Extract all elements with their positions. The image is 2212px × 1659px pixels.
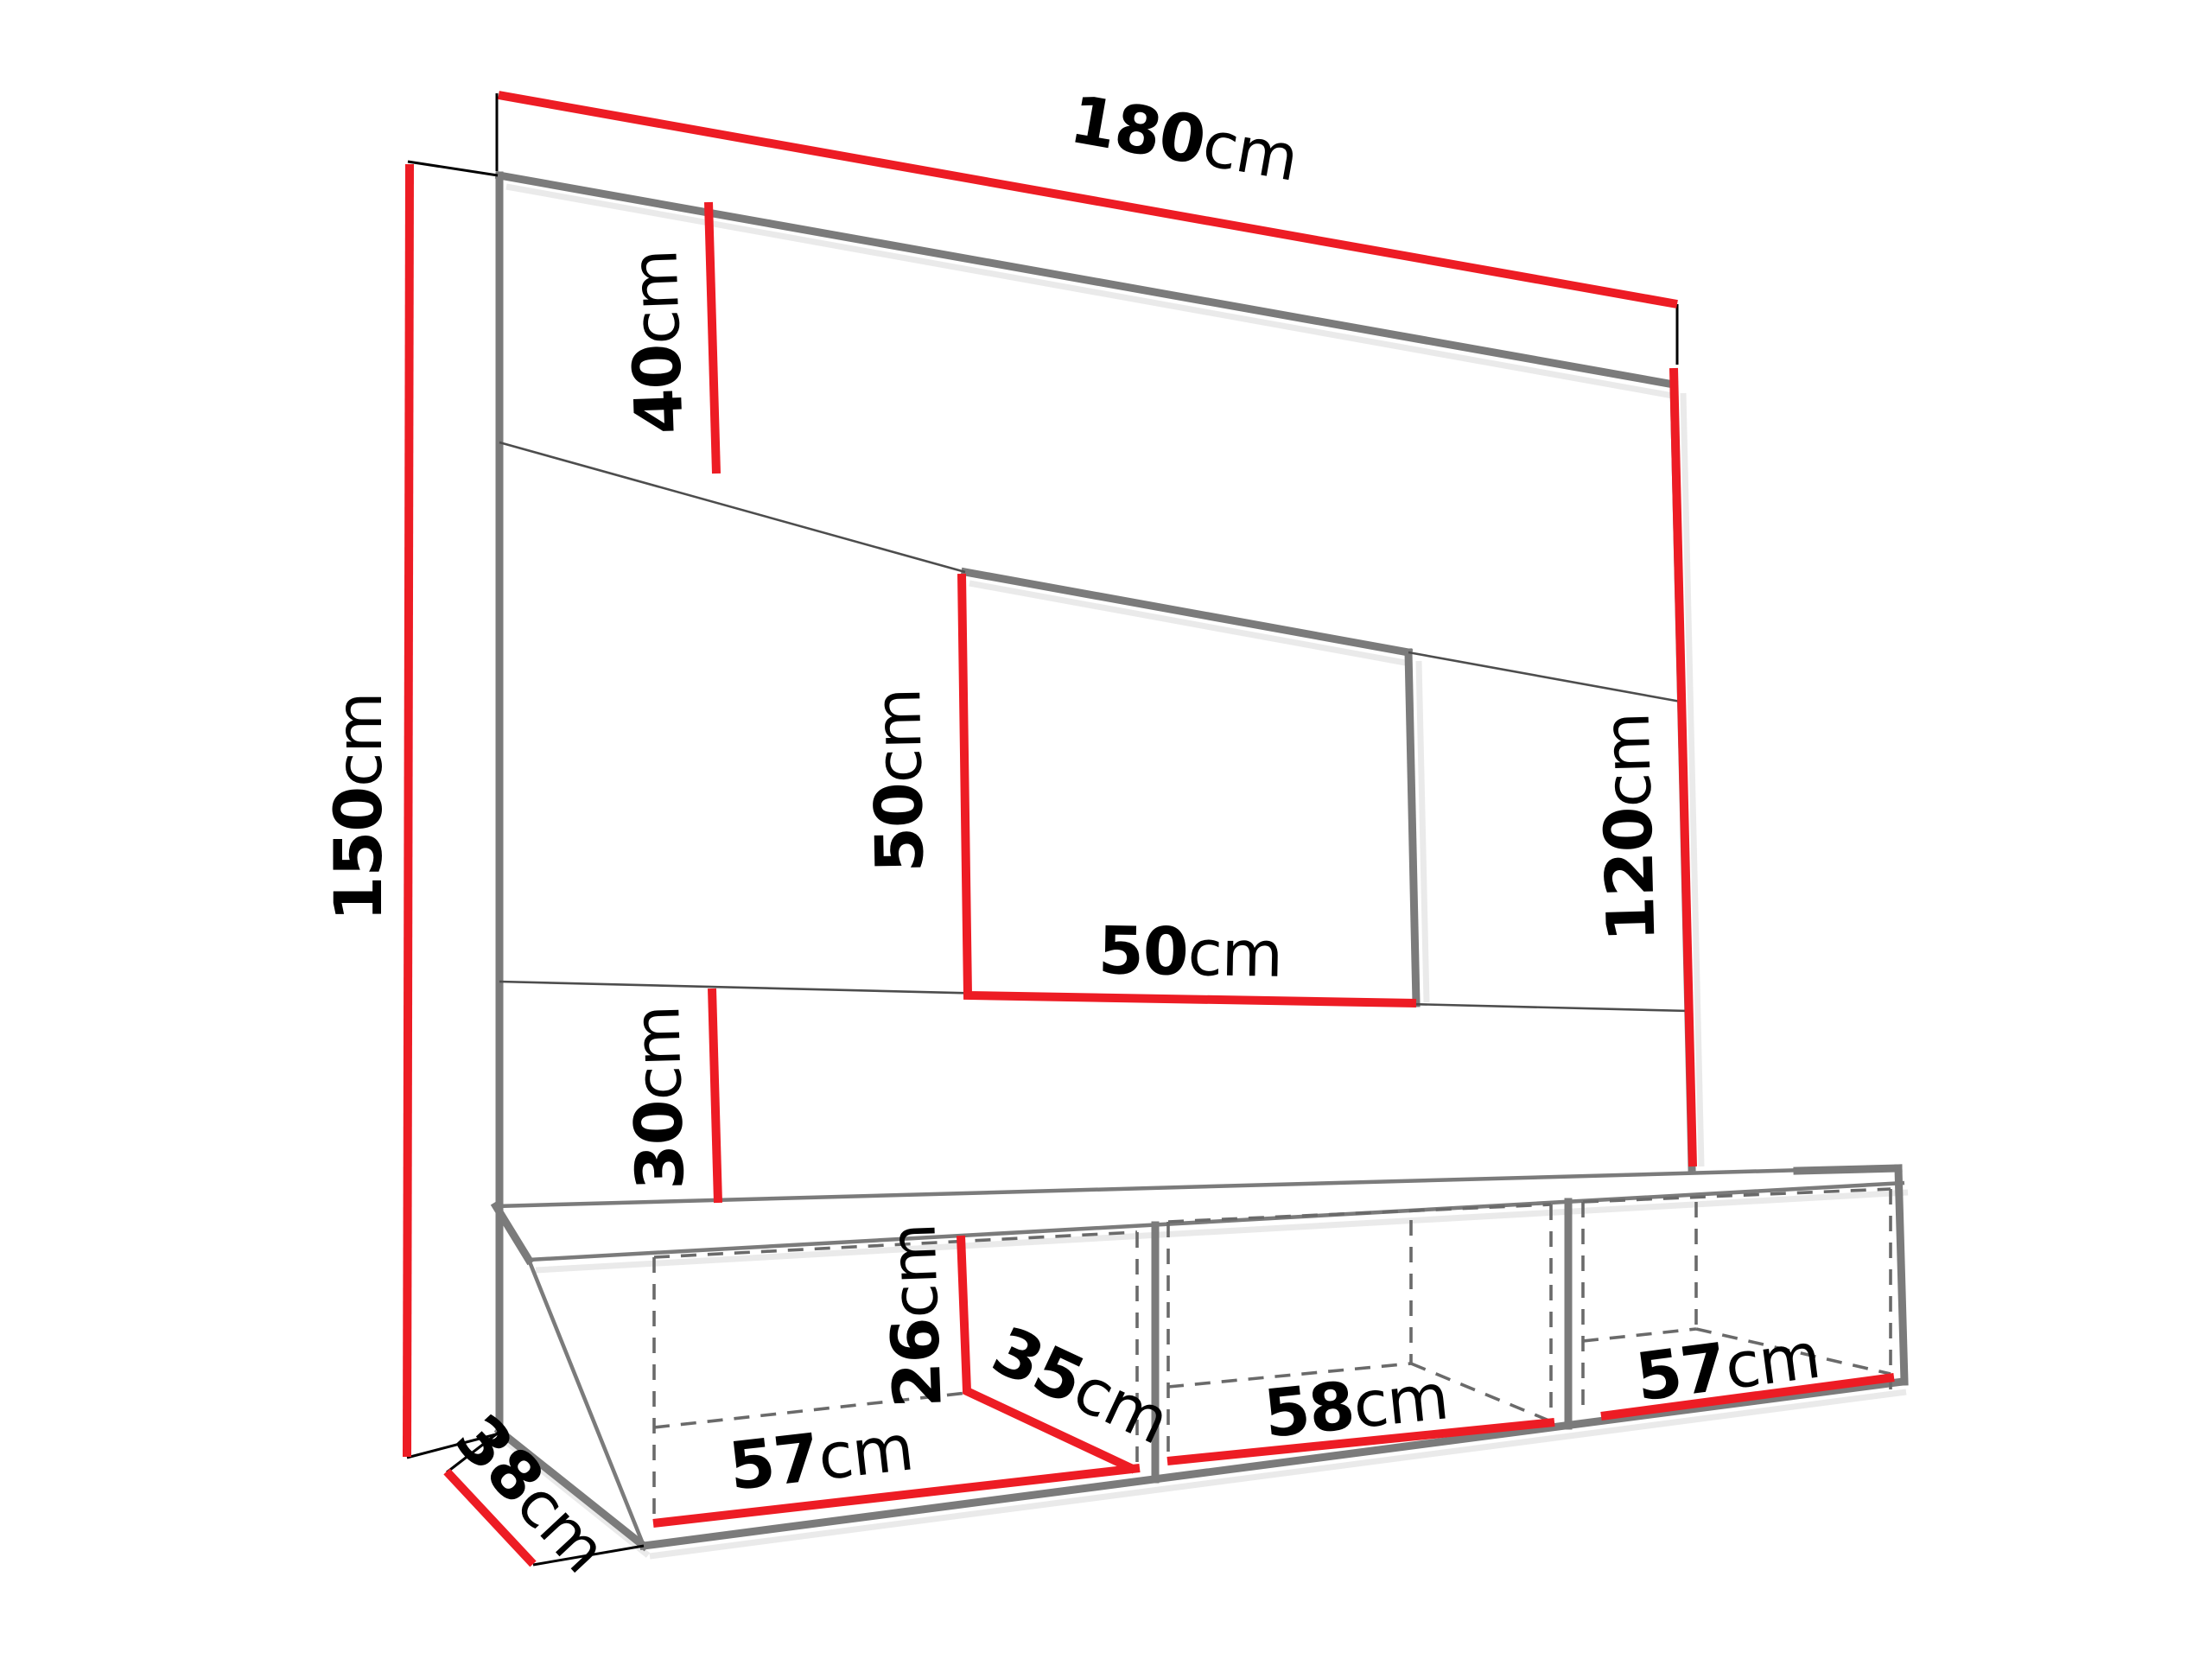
dim-label-26: 26cm: [873, 1223, 956, 1409]
dimension-line-150: [407, 164, 410, 1457]
dim-label-50-height: 50cm: [858, 688, 938, 874]
dim-label-120: 120cm: [1587, 712, 1670, 943]
dim-label-150: 150cm: [320, 693, 397, 922]
dimension-line-30: [712, 988, 718, 1203]
dim-label-50-width: 50cm: [1097, 912, 1283, 992]
dim-label-30: 30cm: [617, 1005, 699, 1191]
furniture-dimension-diagram: 180cm 150cm 40cm 50cm 50cm 120cm 30cm 26…: [0, 0, 2212, 1659]
dim-label-40: 40cm: [614, 249, 697, 435]
